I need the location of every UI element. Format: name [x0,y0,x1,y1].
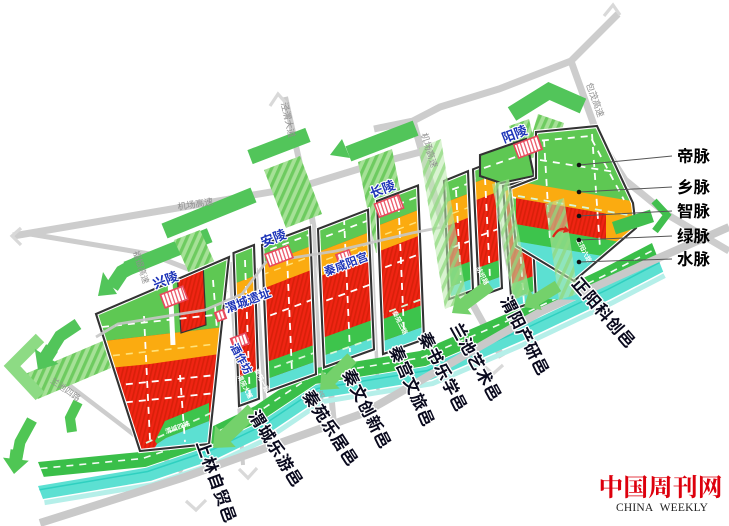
svg-text:CHINA WEEKLY: CHINA WEEKLY [616,502,709,514]
